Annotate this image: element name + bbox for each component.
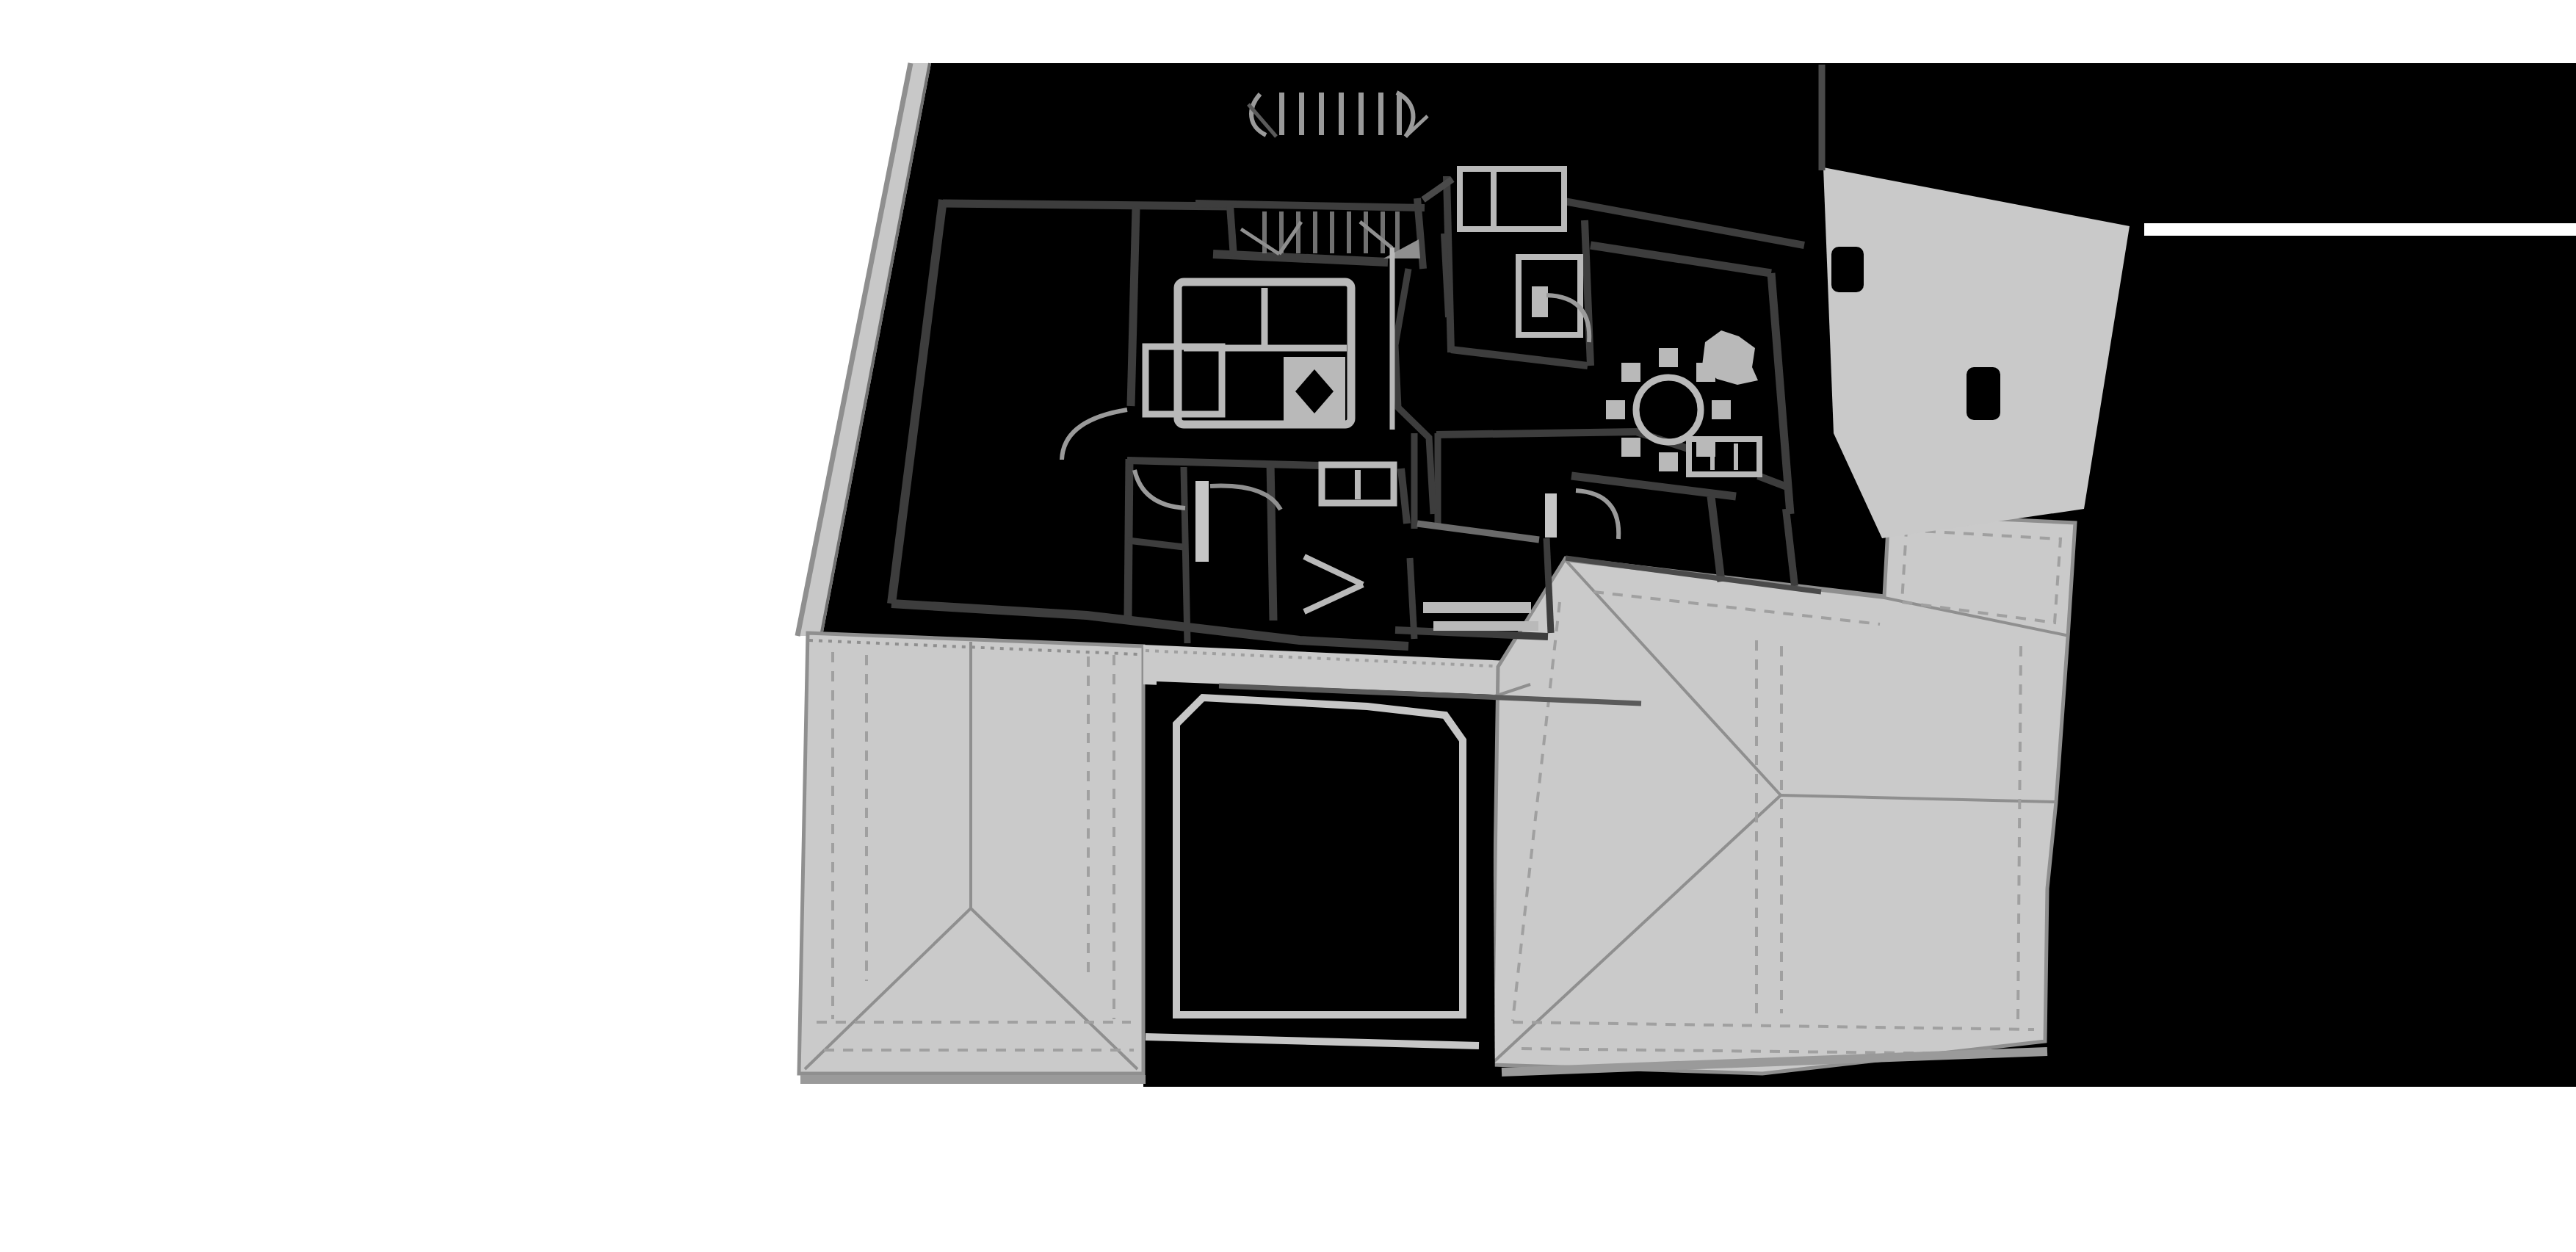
- dining-door-leaf: [1545, 493, 1557, 538]
- upper-flight-bar-1: [1279, 93, 1284, 135]
- wall-hall-west: [1184, 467, 1187, 643]
- wall-livingroom-east-upper: [1131, 208, 1136, 406]
- dining-chair-n: [1659, 348, 1678, 367]
- chimney-opening-2: [1967, 367, 2000, 420]
- right-roof: [1492, 514, 2075, 1074]
- small-bath-tub-rim-2: [1433, 621, 1538, 631]
- scanline-white-strip: [2144, 223, 2576, 236]
- chimney-opening-1: [1831, 247, 1864, 292]
- dining-chair-nw: [1621, 363, 1640, 382]
- plan-image: [0, 0, 2576, 1252]
- upper-flight-bar-6: [1378, 93, 1383, 135]
- upper-flight-bar-3: [1319, 93, 1324, 135]
- wall-small-bath-east: [1546, 538, 1551, 633]
- upper-flight-bar-2: [1299, 93, 1304, 135]
- wall-small-bath-west: [1410, 558, 1414, 639]
- wall-hall-divider: [1270, 463, 1273, 620]
- shower-drain-pad: [1532, 286, 1548, 317]
- upper-flight-bar-5: [1358, 93, 1364, 135]
- hall-door-leaf: [1195, 481, 1209, 562]
- wall-kitchen-south: [1127, 460, 1322, 466]
- site-plan-canvas: [0, 0, 2576, 1252]
- wall-livingroom-north: [943, 203, 1234, 206]
- flat-neighbor-roof: [1823, 167, 2130, 538]
- wall-dining-south-west: [1436, 432, 1638, 435]
- dining-chair-sw: [1621, 438, 1640, 457]
- dining-chair-s: [1659, 452, 1678, 471]
- upper-flight-bar-4: [1339, 93, 1344, 135]
- courtyard-void: [1157, 681, 1495, 1087]
- upper-flight-bar-7: [1397, 93, 1402, 135]
- dining-chair-w: [1606, 400, 1625, 419]
- wall-stairs-west: [1230, 206, 1234, 257]
- small-bath-tub-rim-1: [1423, 602, 1531, 613]
- dining-chair-e: [1712, 400, 1731, 419]
